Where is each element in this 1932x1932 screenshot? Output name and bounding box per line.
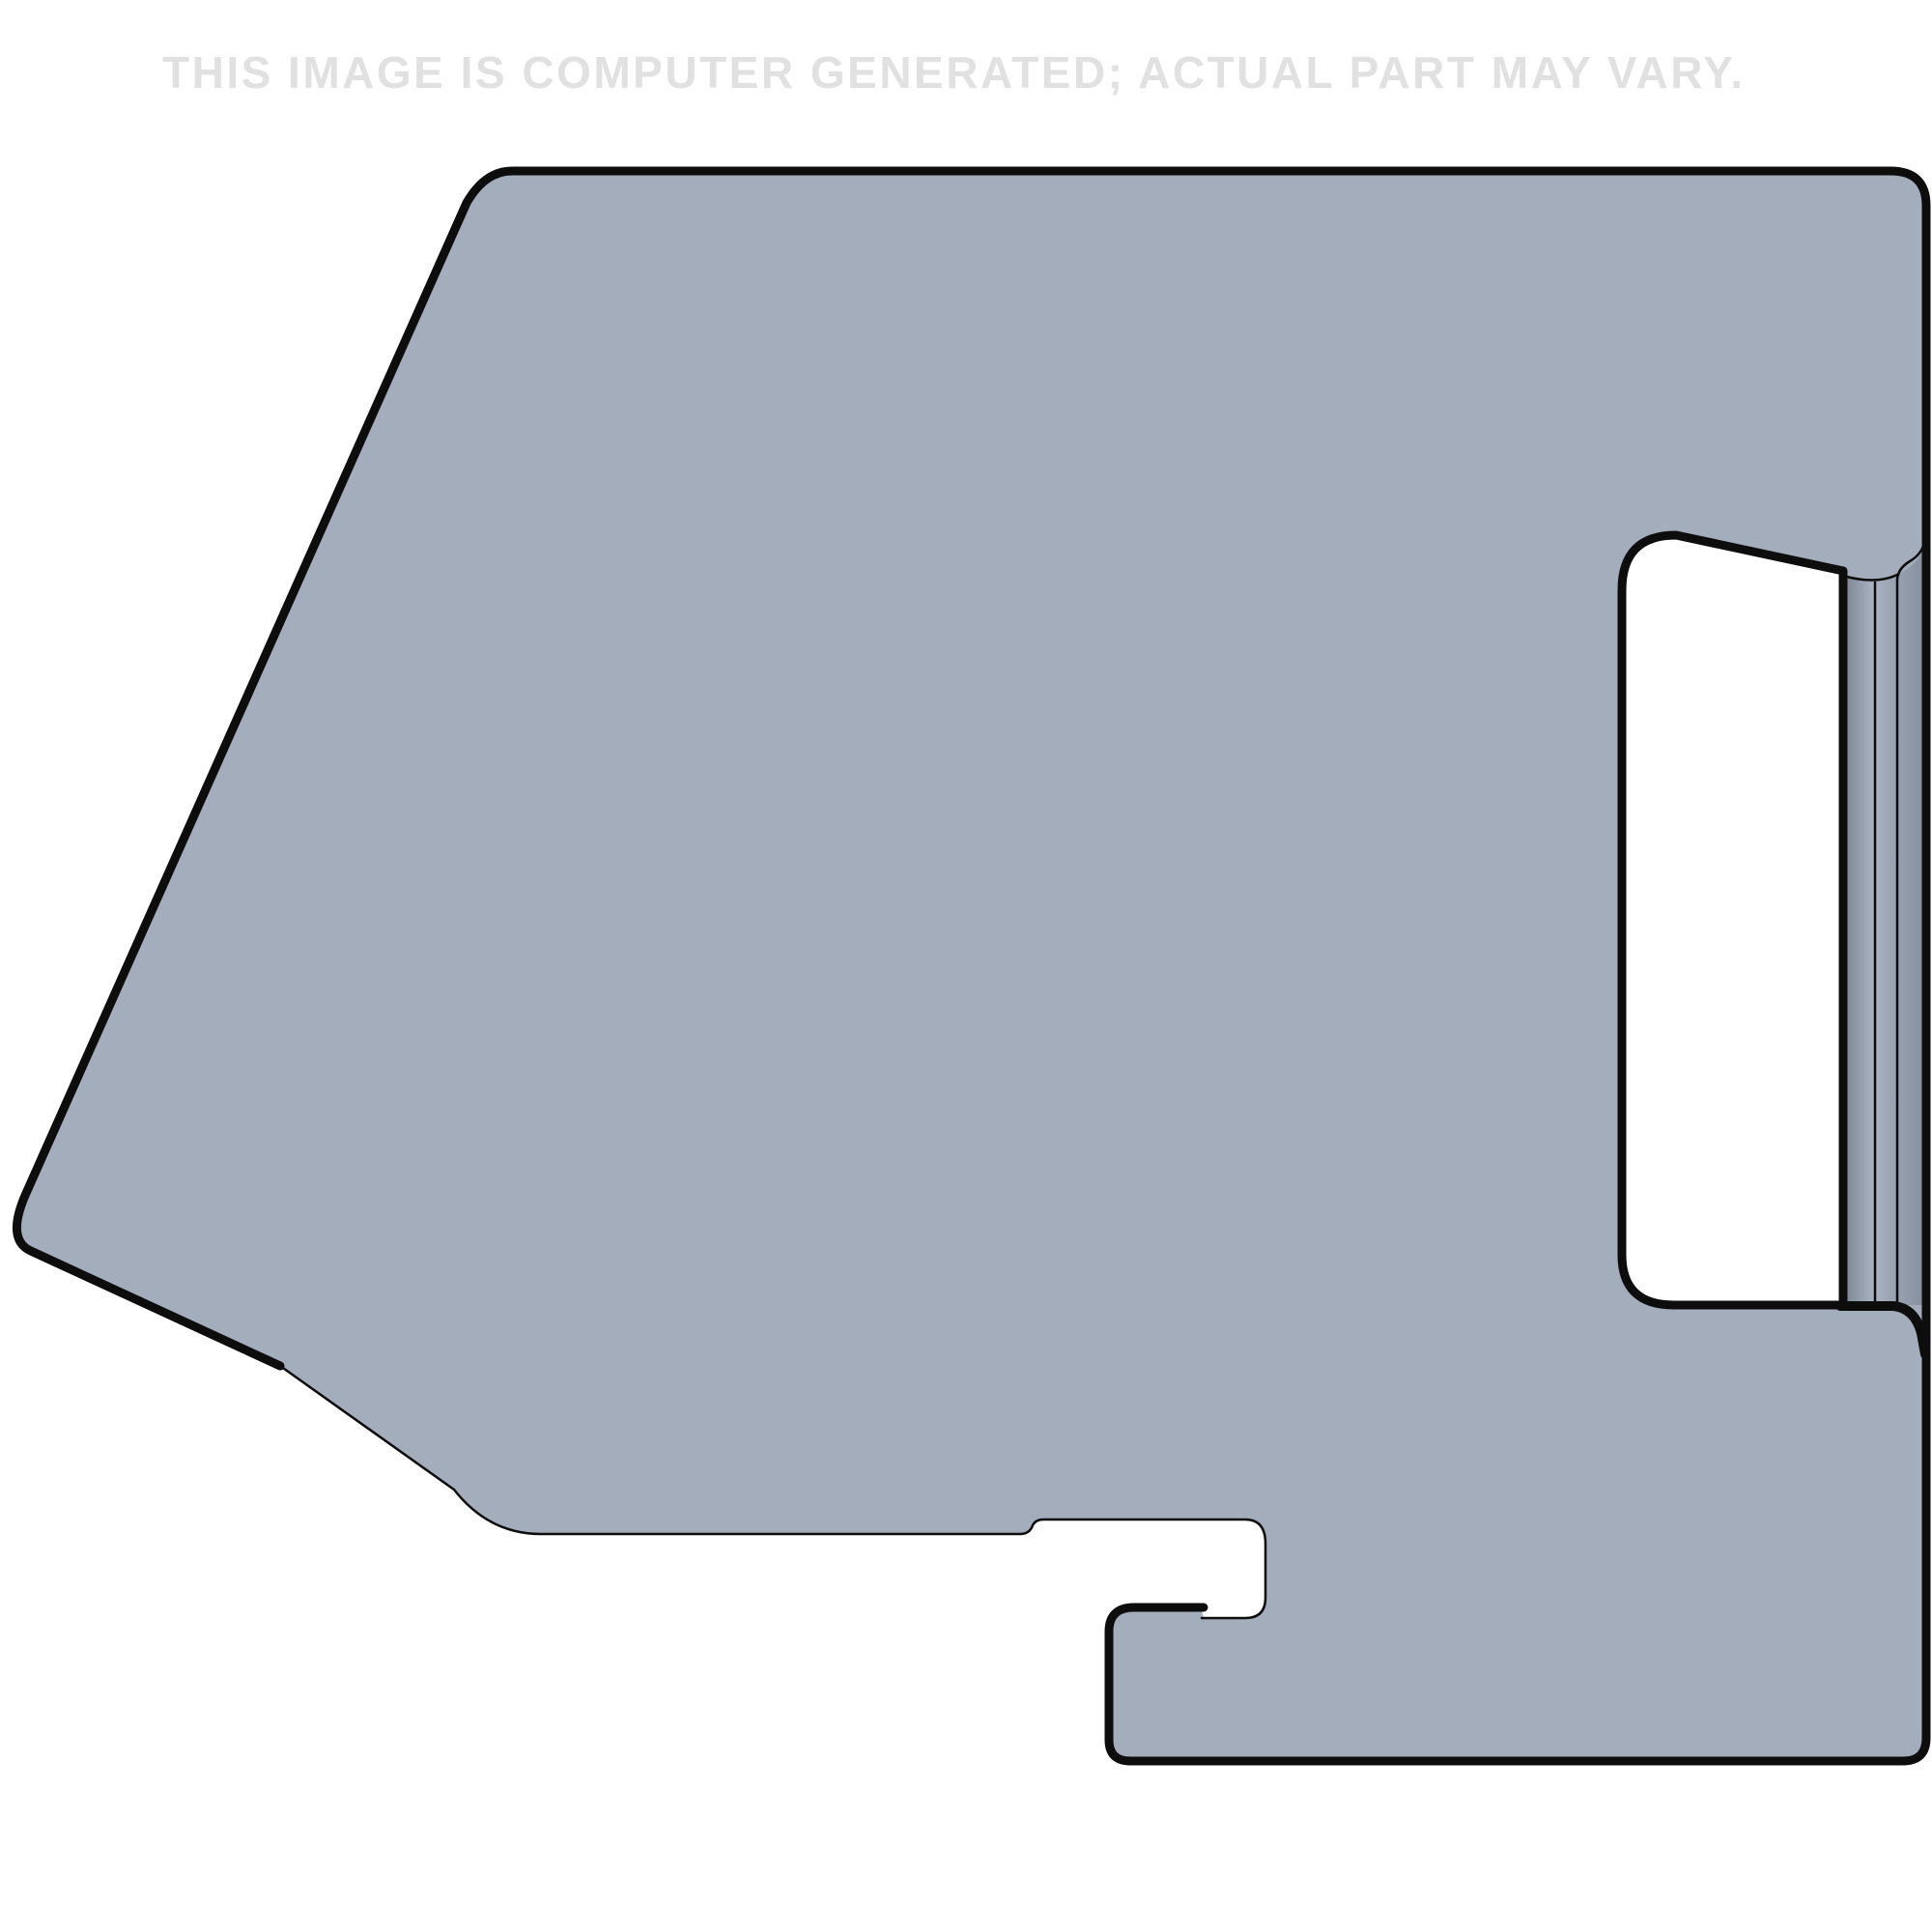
part-image-canvas: THIS IMAGE IS COMPUTER GENERATED; ACTUAL… xyxy=(0,0,1932,1932)
part-diagram xyxy=(0,0,1932,1932)
right-edge-flange xyxy=(1845,543,1924,1305)
handle-cutout xyxy=(1622,535,1843,1305)
